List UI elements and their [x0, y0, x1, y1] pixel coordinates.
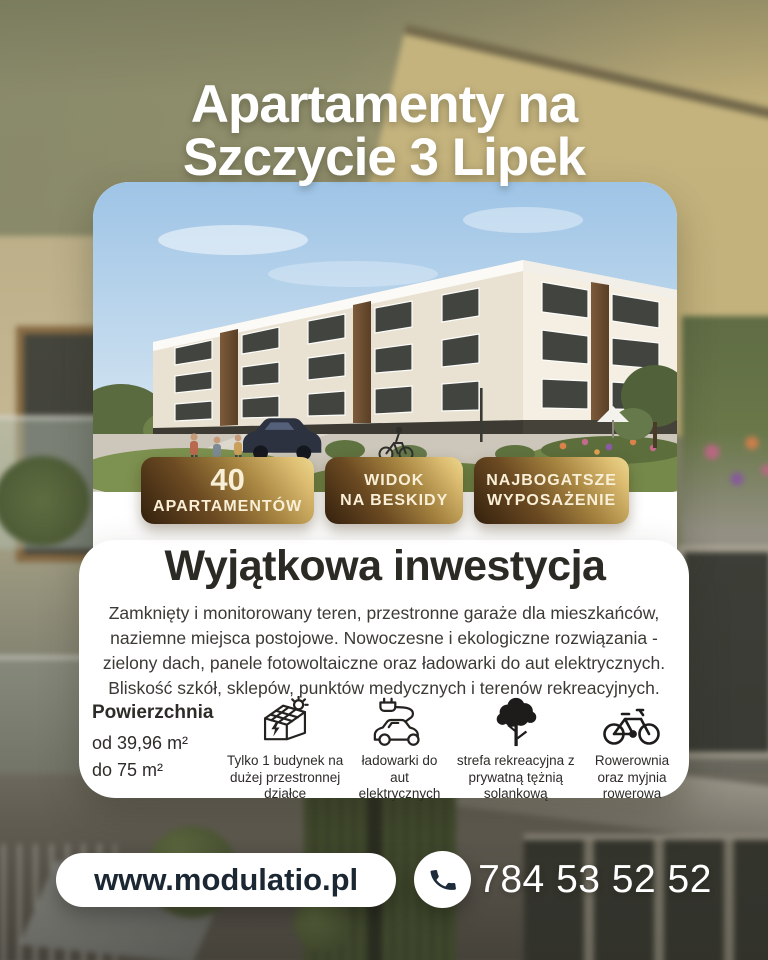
ev-charger-icon	[369, 692, 429, 748]
building-render-image	[93, 182, 677, 492]
feature-ev-chargers: ładowarki do aut elektrycznych	[351, 692, 447, 803]
area-info: Powierzchnia od 39,96 m² do 75 m²	[92, 692, 219, 803]
website-link[interactable]: www.modulatio.pl	[56, 853, 396, 907]
tree-icon	[488, 692, 544, 748]
title-line-2: Szczycie 3 Lipek	[0, 131, 768, 184]
title-line-1: Apartamenty na	[0, 78, 768, 131]
page-title: Apartamenty na Szczycie 3 Lipek	[0, 78, 768, 184]
contact-bar: www.modulatio.pl 784 53 52 52	[0, 851, 768, 908]
section-description: Zamknięty i monitorowany teren, przestro…	[101, 601, 667, 701]
badge-apartments: 40 APARTAMENTÓW	[141, 457, 314, 524]
area-label: Powierzchnia	[92, 702, 219, 724]
badge-view: WIDOK NA BESKIDY	[325, 457, 463, 524]
badge-apartments-label: APARTAMENTÓW	[153, 497, 302, 517]
feature-single-building: Tylko 1 budynek na dużej przestronnej dz…	[219, 692, 352, 803]
feature-recreation: strefa rekreacyjna z prywatną tężnią sol…	[448, 692, 584, 803]
phone-number: 784 53 52 52	[478, 858, 712, 902]
badge-apartments-count: 40	[210, 464, 244, 497]
poster-page: Apartamenty na Szczycie 3 Lipek	[0, 0, 768, 960]
feature-bike-room: Rowerownia oraz myjnia rowerowa	[584, 692, 680, 803]
building-render-svg	[93, 182, 677, 492]
area-from: od 39,96 m²	[92, 730, 219, 757]
phone-icon	[426, 863, 460, 897]
features-row: Powierzchnia od 39,96 m² do 75 m² Tylko …	[92, 692, 680, 803]
section-heading: Wyjątkowa inwestycja	[93, 542, 677, 591]
badge-equipment: NAJBOGATSZE WYPOSAŻENIE	[474, 457, 629, 524]
area-to: do 75 m²	[92, 757, 219, 784]
phone-contact[interactable]: 784 53 52 52	[414, 851, 712, 908]
badge-row: 40 APARTAMENTÓW WIDOK NA BESKIDY NAJBOGA…	[93, 457, 677, 524]
bicycle-icon	[601, 692, 663, 748]
solar-house-icon	[256, 692, 314, 748]
phone-circle	[414, 851, 471, 908]
